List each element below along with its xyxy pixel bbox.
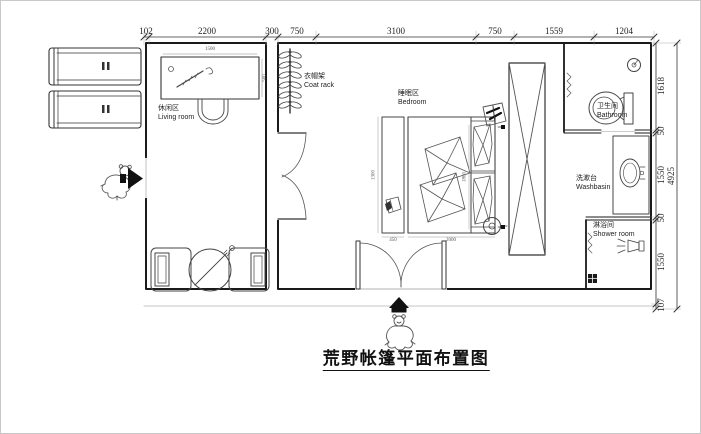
nightstand-plant-icon bbox=[483, 103, 506, 126]
label-bedroom-zh: 睡眠区 bbox=[398, 89, 426, 98]
dim-top-2200: 2200 bbox=[198, 26, 216, 36]
door-butterfly bbox=[278, 133, 306, 219]
dim-desk-width: 1500 bbox=[205, 47, 215, 52]
label-living-room: 休闲区 Living room bbox=[158, 104, 194, 123]
dim-right-50b: 50 bbox=[656, 214, 666, 223]
label-coat-rack-en: Coat rack bbox=[304, 81, 334, 90]
label-washbasin-en: Washbasin bbox=[576, 183, 610, 192]
dim-top-300: 300 bbox=[265, 26, 279, 36]
label-bathroom-zh: 卫生间 bbox=[597, 102, 627, 111]
entrance-arrow-right-icon bbox=[120, 168, 143, 189]
label-coat-rack: 衣帽架 Coat rack bbox=[304, 72, 334, 91]
dim-right-total-4925: 4925 bbox=[666, 167, 676, 185]
dim-bench-length: 1300 bbox=[372, 170, 377, 180]
label-shower-room-zh: 淋浴间 bbox=[593, 221, 635, 230]
dim-bed-width: 1800 bbox=[463, 172, 468, 182]
armchair-left bbox=[151, 248, 191, 291]
entrance-arrow-up-icon bbox=[389, 297, 409, 313]
dim-top-1559: 1559 bbox=[545, 26, 563, 36]
toilet-paper-icon bbox=[628, 59, 641, 72]
floorplan: 休闲区 Living room 衣帽架 Coat rack 睡眠区 Bedroo… bbox=[0, 0, 701, 434]
dim-top-3100: 3100 bbox=[387, 26, 405, 36]
dim-top-750a: 750 bbox=[290, 26, 304, 36]
dim-bed-length: 2000 bbox=[446, 238, 456, 243]
shower-head-icon bbox=[617, 239, 644, 253]
label-bedroom: 睡眠区 Bedroom bbox=[398, 89, 426, 108]
dim-right-50a: 50 bbox=[656, 127, 666, 136]
bathroom-walls bbox=[564, 43, 651, 289]
bedside-bench bbox=[382, 117, 404, 233]
dim-bench-width: 450 bbox=[389, 238, 397, 243]
label-washbasin-zh: 洗漱台 bbox=[576, 174, 610, 183]
label-coat-rack-zh: 衣帽架 bbox=[304, 72, 334, 81]
entrance-bear-left-icon bbox=[101, 165, 131, 200]
desk-chair bbox=[198, 99, 228, 124]
shower-towel-rack-icon bbox=[588, 233, 592, 253]
label-bathroom: 卫生间 Bathroom bbox=[597, 102, 627, 121]
dim-right-1550a: 1550 bbox=[656, 166, 666, 184]
label-shower-room: 淋浴间 Shower room bbox=[593, 221, 635, 240]
dim-top-750b: 750 bbox=[488, 26, 502, 36]
floor-drain-icon bbox=[588, 274, 597, 283]
round-table bbox=[189, 246, 234, 291]
label-bedroom-en: Bedroom bbox=[398, 98, 426, 107]
lounge-chairs bbox=[49, 48, 141, 128]
label-living-room-en: Living room bbox=[158, 113, 194, 122]
armchair-right bbox=[229, 248, 269, 291]
bed bbox=[408, 117, 495, 233]
label-shower-room-en: Shower room bbox=[593, 230, 635, 239]
dim-top-1204: 1204 bbox=[615, 26, 633, 36]
dim-right-107: 107 bbox=[656, 298, 666, 312]
label-living-room-zh: 休闲区 bbox=[158, 104, 194, 113]
dim-right-1618: 1618 bbox=[656, 77, 666, 95]
towel-rack-icon bbox=[567, 73, 571, 97]
dim-desk-depth: 500 bbox=[263, 74, 268, 82]
drawing-title: 荒野帐篷平面布置图 bbox=[323, 344, 490, 371]
coat-rack-icon bbox=[278, 49, 302, 113]
label-washbasin: 洗漱台 Washbasin bbox=[576, 174, 610, 193]
door-double-swing bbox=[356, 241, 446, 289]
pillow-icons bbox=[473, 124, 492, 224]
washbasin-icon bbox=[613, 136, 649, 214]
wardrobe bbox=[509, 63, 545, 255]
label-bathroom-en: Bathroom bbox=[597, 111, 627, 120]
desk bbox=[161, 54, 262, 99]
dim-top-102: 102 bbox=[139, 26, 153, 36]
dim-right-1550b: 1550 bbox=[656, 253, 666, 271]
cabinet-knobs bbox=[498, 125, 505, 229]
